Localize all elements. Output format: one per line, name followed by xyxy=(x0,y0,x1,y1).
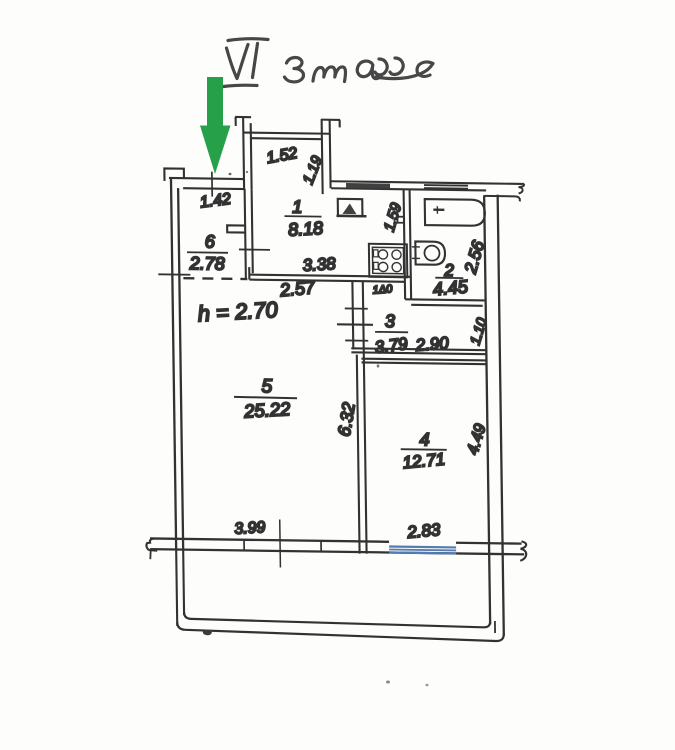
svg-text:12.71: 12.71 xyxy=(402,450,446,473)
svg-text:2.57: 2.57 xyxy=(278,277,317,300)
svg-text:1Δ0: 1Δ0 xyxy=(372,283,394,296)
svg-text:6.32: 6.32 xyxy=(334,401,359,438)
svg-text:2.83: 2.83 xyxy=(405,520,442,542)
svg-text:h = 2.70: h = 2.70 xyxy=(197,297,280,326)
svg-text:4: 4 xyxy=(419,429,429,449)
svg-text:5: 5 xyxy=(261,376,272,397)
svg-text:3: 3 xyxy=(385,311,395,331)
svg-text:6: 6 xyxy=(205,231,216,251)
svg-text:1.52: 1.52 xyxy=(265,145,299,167)
svg-text:1.42: 1.42 xyxy=(199,191,232,212)
svg-text:25.22: 25.22 xyxy=(242,398,292,422)
svg-text:8.18: 8.18 xyxy=(287,218,324,240)
svg-text:2.78: 2.78 xyxy=(189,253,225,274)
svg-text:2.90: 2.90 xyxy=(414,333,450,354)
svg-text:3.38: 3.38 xyxy=(302,254,337,275)
svg-text:4.45: 4.45 xyxy=(432,276,470,299)
svg-text:1: 1 xyxy=(292,197,302,217)
svg-text:4.49: 4.49 xyxy=(465,422,490,457)
svg-text:3.99: 3.99 xyxy=(234,519,267,538)
